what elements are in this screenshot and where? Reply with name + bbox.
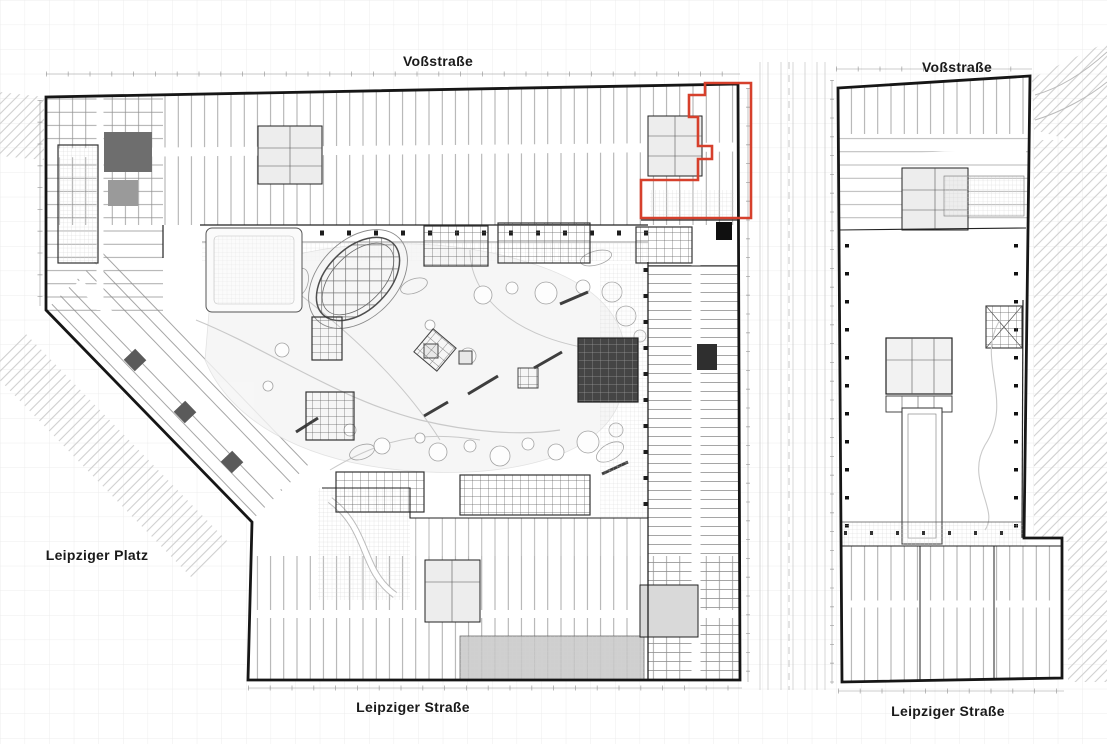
floor-plan-page: Voßstraße Voßstraße Leipziger Platz Leip… [0,0,1107,744]
right-south-rooms [838,546,1064,682]
hatch-right-margin-upper [1034,140,1107,542]
south-wing-upper-rooms [408,518,648,556]
hatch-right-margin-lower [1068,542,1107,682]
hatch-top-left [0,92,44,160]
right-core-mid [886,338,952,394]
west-hall [58,145,98,263]
street-label-vossstrasse-right: Voßstraße [922,59,992,75]
right-paving-upper [944,176,1024,216]
right-colonnade-paving [838,522,1028,546]
street-label-leipziger-strasse-main: Leipziger Straße [356,699,470,715]
floor-plan-canvas: Voßstraße Voßstraße Leipziger Platz Leip… [0,0,1107,744]
courtyard-pavilion [206,228,302,312]
dark-skylight-block [578,338,638,402]
street-label-vossstrasse-main: Voßstraße [403,53,473,69]
street-label-leipziger-strasse-right: Leipziger Straße [891,703,1005,719]
street-label-leipziger-platz: Leipziger Platz [46,547,149,563]
deck-in-highlight-zone [650,190,734,218]
